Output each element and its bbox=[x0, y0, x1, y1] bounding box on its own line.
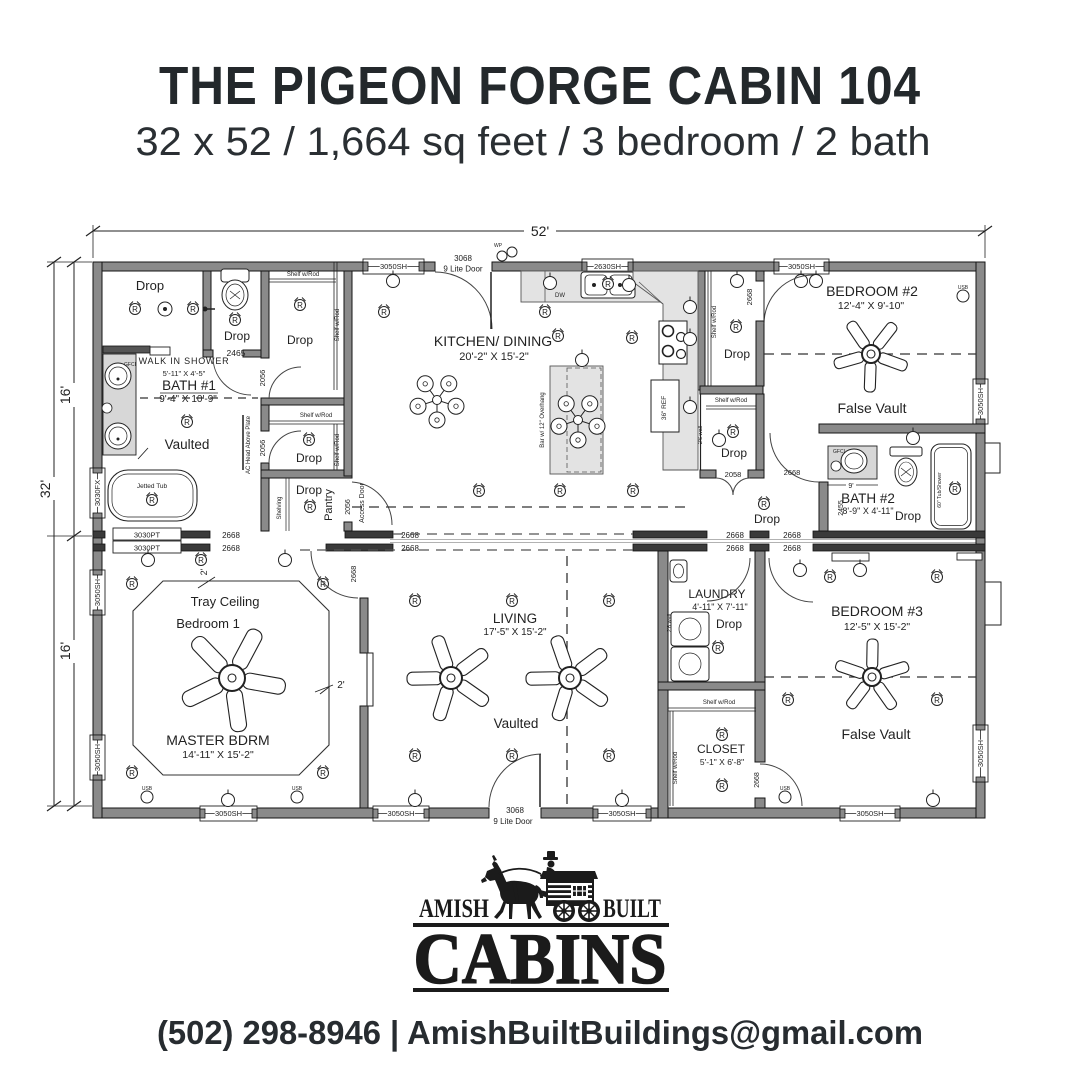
svg-text:WALK IN SHOWER: WALK IN SHOWER bbox=[139, 356, 230, 366]
svg-text:False Vault: False Vault bbox=[842, 726, 911, 742]
svg-text:R: R bbox=[190, 305, 196, 314]
svg-text:R: R bbox=[555, 332, 561, 341]
svg-text:9 Lite Door: 9 Lite Door bbox=[493, 817, 532, 826]
svg-text:R: R bbox=[306, 436, 312, 445]
svg-text:52': 52' bbox=[531, 223, 549, 239]
svg-text:R: R bbox=[381, 308, 387, 317]
svg-text:(502) 298-8946 | AmishBuiltBui: (502) 298-8946 | AmishBuiltBuildings@gma… bbox=[157, 1014, 923, 1051]
svg-text:Shelf w/Rod: Shelf w/Rod bbox=[300, 413, 332, 419]
svg-text:4'-11" X 7'-11": 4'-11" X 7'-11" bbox=[692, 602, 748, 612]
svg-text:2465: 2465 bbox=[227, 348, 246, 358]
svg-text:2668: 2668 bbox=[754, 772, 761, 788]
svg-text:R: R bbox=[719, 782, 725, 791]
svg-text:3050SH: 3050SH bbox=[93, 579, 102, 606]
svg-text:9': 9' bbox=[848, 483, 853, 490]
svg-text:2668: 2668 bbox=[745, 289, 754, 306]
svg-text:2668: 2668 bbox=[349, 566, 358, 583]
svg-text:R: R bbox=[934, 696, 940, 705]
svg-text:32': 32' bbox=[37, 480, 53, 498]
svg-text:R: R bbox=[129, 769, 135, 778]
svg-text:12'-4" X 9'-10": 12'-4" X 9'-10" bbox=[838, 300, 905, 312]
svg-text:R: R bbox=[630, 487, 636, 496]
svg-text:Drop: Drop bbox=[296, 483, 322, 497]
svg-text:R: R bbox=[509, 752, 515, 761]
svg-text:R: R bbox=[509, 597, 515, 606]
svg-text:2056: 2056 bbox=[258, 370, 267, 387]
svg-text:2': 2' bbox=[199, 568, 209, 575]
svg-text:R: R bbox=[412, 597, 418, 606]
svg-text:5'-11" X 4'-5": 5'-11" X 4'-5" bbox=[163, 369, 206, 378]
svg-text:Tray Ceiling: Tray Ceiling bbox=[191, 594, 260, 609]
svg-text:Bar w/ 12" Overhang: Bar w/ 12" Overhang bbox=[540, 392, 546, 448]
svg-text:GFCI: GFCI bbox=[833, 449, 845, 455]
svg-text:12'-5" X 15'-2": 12'-5" X 15'-2" bbox=[844, 621, 911, 633]
svg-text:R: R bbox=[730, 428, 736, 437]
svg-text:2668: 2668 bbox=[401, 544, 419, 553]
svg-text:Pantry: Pantry bbox=[323, 489, 335, 521]
svg-text:R: R bbox=[785, 696, 791, 705]
svg-text:2056: 2056 bbox=[258, 440, 267, 457]
svg-text:2058: 2058 bbox=[725, 470, 742, 479]
svg-text:3050SH: 3050SH bbox=[856, 809, 883, 818]
svg-text:Shelf w/Rod: Shelf w/Rod bbox=[673, 752, 679, 784]
svg-text:Drop: Drop bbox=[224, 329, 250, 343]
svg-text:Drop: Drop bbox=[287, 333, 313, 347]
svg-text:Shelf w/Rod: Shelf w/Rod bbox=[335, 434, 341, 466]
svg-text:R: R bbox=[606, 752, 612, 761]
svg-text:R: R bbox=[149, 496, 155, 505]
svg-text:17'-5" X 15'-2": 17'-5" X 15'-2" bbox=[483, 627, 547, 638]
svg-text:2668: 2668 bbox=[783, 544, 801, 553]
svg-text:3050SH: 3050SH bbox=[976, 388, 985, 415]
svg-text:Vaulted: Vaulted bbox=[165, 437, 210, 452]
svg-text:R: R bbox=[232, 316, 238, 325]
svg-text:Drop: Drop bbox=[721, 446, 747, 460]
svg-text:BEDROOM #3: BEDROOM #3 bbox=[831, 603, 923, 619]
svg-text:3050SH: 3050SH bbox=[380, 262, 407, 271]
svg-text:R: R bbox=[542, 308, 548, 317]
svg-text:Shelving: Shelving bbox=[277, 496, 283, 519]
svg-text:R: R bbox=[198, 556, 204, 565]
svg-text:32 x 52 / 1,664 sq feet / 3 be: 32 x 52 / 1,664 sq feet / 3 bedroom / 2 … bbox=[136, 120, 931, 164]
svg-text:THE PIGEON FORGE CABIN 104: THE PIGEON FORGE CABIN 104 bbox=[159, 56, 921, 116]
svg-text:2668: 2668 bbox=[401, 531, 419, 540]
svg-text:R: R bbox=[184, 418, 190, 427]
svg-text:R: R bbox=[715, 644, 721, 653]
svg-text:3030PT: 3030PT bbox=[134, 531, 161, 540]
svg-text:5'-1" X 6'-8": 5'-1" X 6'-8" bbox=[700, 757, 744, 767]
svg-text:R: R bbox=[129, 580, 135, 589]
svg-text:16': 16' bbox=[57, 642, 73, 660]
svg-text:AC Head Above Plate: AC Head Above Plate bbox=[246, 415, 252, 474]
svg-text:R: R bbox=[297, 301, 303, 310]
svg-text:2'6 wall: 2'6 wall bbox=[698, 426, 704, 444]
svg-text:WP: WP bbox=[494, 243, 503, 249]
svg-text:3068: 3068 bbox=[454, 254, 472, 263]
svg-text:Shelf w/Rod: Shelf w/Rod bbox=[335, 309, 341, 341]
svg-text:R: R bbox=[827, 573, 833, 582]
svg-text:BATH #1: BATH #1 bbox=[162, 378, 216, 393]
svg-text:36" REF: 36" REF bbox=[661, 396, 668, 420]
svg-text:3050SH: 3050SH bbox=[608, 809, 635, 818]
svg-text:3050SH: 3050SH bbox=[215, 809, 242, 818]
svg-text:3050SH: 3050SH bbox=[976, 740, 985, 767]
svg-text:R: R bbox=[629, 334, 635, 343]
svg-text:Drop: Drop bbox=[895, 509, 921, 523]
svg-text:14'-11" X 15'-2": 14'-11" X 15'-2" bbox=[182, 749, 254, 761]
svg-text:3050SH: 3050SH bbox=[387, 809, 414, 818]
svg-text:3030PT: 3030PT bbox=[134, 544, 161, 553]
svg-text:Shelf w/Rod: Shelf w/Rod bbox=[715, 398, 747, 404]
svg-text:Shelf w/Rod: Shelf w/Rod bbox=[712, 306, 718, 338]
svg-text:R: R bbox=[320, 769, 326, 778]
svg-text:Drop: Drop bbox=[716, 617, 742, 631]
svg-text:2668: 2668 bbox=[726, 544, 744, 553]
svg-text:3050SH: 3050SH bbox=[788, 262, 815, 271]
svg-text:R: R bbox=[606, 597, 612, 606]
svg-text:CLOSET: CLOSET bbox=[697, 742, 746, 756]
svg-text:Drop: Drop bbox=[136, 278, 164, 293]
svg-text:Drop: Drop bbox=[296, 451, 322, 465]
svg-text:R: R bbox=[412, 752, 418, 761]
svg-text:DW: DW bbox=[555, 293, 565, 299]
svg-text:KITCHEN/ DINING: KITCHEN/ DINING bbox=[434, 333, 552, 349]
svg-text:BEDROOM #2: BEDROOM #2 bbox=[826, 283, 918, 299]
svg-text:60" Tub/Shower: 60" Tub/Shower bbox=[937, 472, 943, 508]
svg-text:2056: 2056 bbox=[345, 499, 352, 515]
svg-text:2668: 2668 bbox=[783, 531, 801, 540]
svg-text:R: R bbox=[934, 573, 940, 582]
svg-text:R: R bbox=[761, 500, 767, 509]
svg-text:9 Lite Door: 9 Lite Door bbox=[443, 265, 482, 274]
svg-text:16': 16' bbox=[57, 386, 73, 404]
svg-text:Access Door: Access Door bbox=[359, 482, 366, 522]
svg-text:3068: 3068 bbox=[506, 806, 524, 815]
svg-text:Jetted Tub: Jetted Tub bbox=[137, 483, 168, 490]
svg-text:3030FX: 3030FX bbox=[93, 480, 102, 506]
svg-text:BATH #2: BATH #2 bbox=[841, 491, 895, 506]
svg-text:2': 2' bbox=[337, 680, 345, 691]
svg-text:20'-2" X 15'-2": 20'-2" X 15'-2" bbox=[459, 351, 529, 363]
svg-text:R: R bbox=[952, 485, 958, 494]
svg-text:R: R bbox=[557, 487, 563, 496]
svg-text:R: R bbox=[476, 487, 482, 496]
svg-text:3050SH: 3050SH bbox=[93, 744, 102, 771]
svg-text:Drop: Drop bbox=[724, 347, 750, 361]
svg-text:R: R bbox=[605, 280, 611, 289]
svg-text:R: R bbox=[132, 305, 138, 314]
svg-text:2668: 2668 bbox=[222, 544, 240, 553]
svg-text:R: R bbox=[307, 503, 313, 512]
svg-text:2668: 2668 bbox=[784, 468, 801, 477]
svg-text:MASTER BDRM: MASTER BDRM bbox=[166, 732, 269, 748]
svg-text:R: R bbox=[719, 731, 725, 740]
svg-text:2668: 2668 bbox=[222, 531, 240, 540]
svg-text:GFCI: GFCI bbox=[124, 362, 136, 368]
svg-text:Shelf w/Rod: Shelf w/Rod bbox=[287, 272, 319, 278]
svg-text:Vaulted: Vaulted bbox=[494, 716, 539, 731]
svg-text:R: R bbox=[733, 323, 739, 332]
svg-text:8'-9" X 4'-11": 8'-9" X 4'-11" bbox=[842, 506, 893, 516]
svg-text:LIVING: LIVING bbox=[493, 611, 537, 626]
svg-text:Shelf w/Rod: Shelf w/Rod bbox=[703, 700, 735, 706]
svg-text:Drop: Drop bbox=[754, 512, 780, 526]
svg-text:9'-4" X 10'-9": 9'-4" X 10'-9" bbox=[159, 394, 217, 405]
svg-text:2630SH: 2630SH bbox=[594, 262, 621, 271]
svg-text:Bedroom 1: Bedroom 1 bbox=[176, 616, 240, 631]
svg-text:CABINS: CABINS bbox=[414, 919, 667, 999]
svg-text:2668: 2668 bbox=[726, 531, 744, 540]
svg-text:False Vault: False Vault bbox=[838, 400, 907, 416]
